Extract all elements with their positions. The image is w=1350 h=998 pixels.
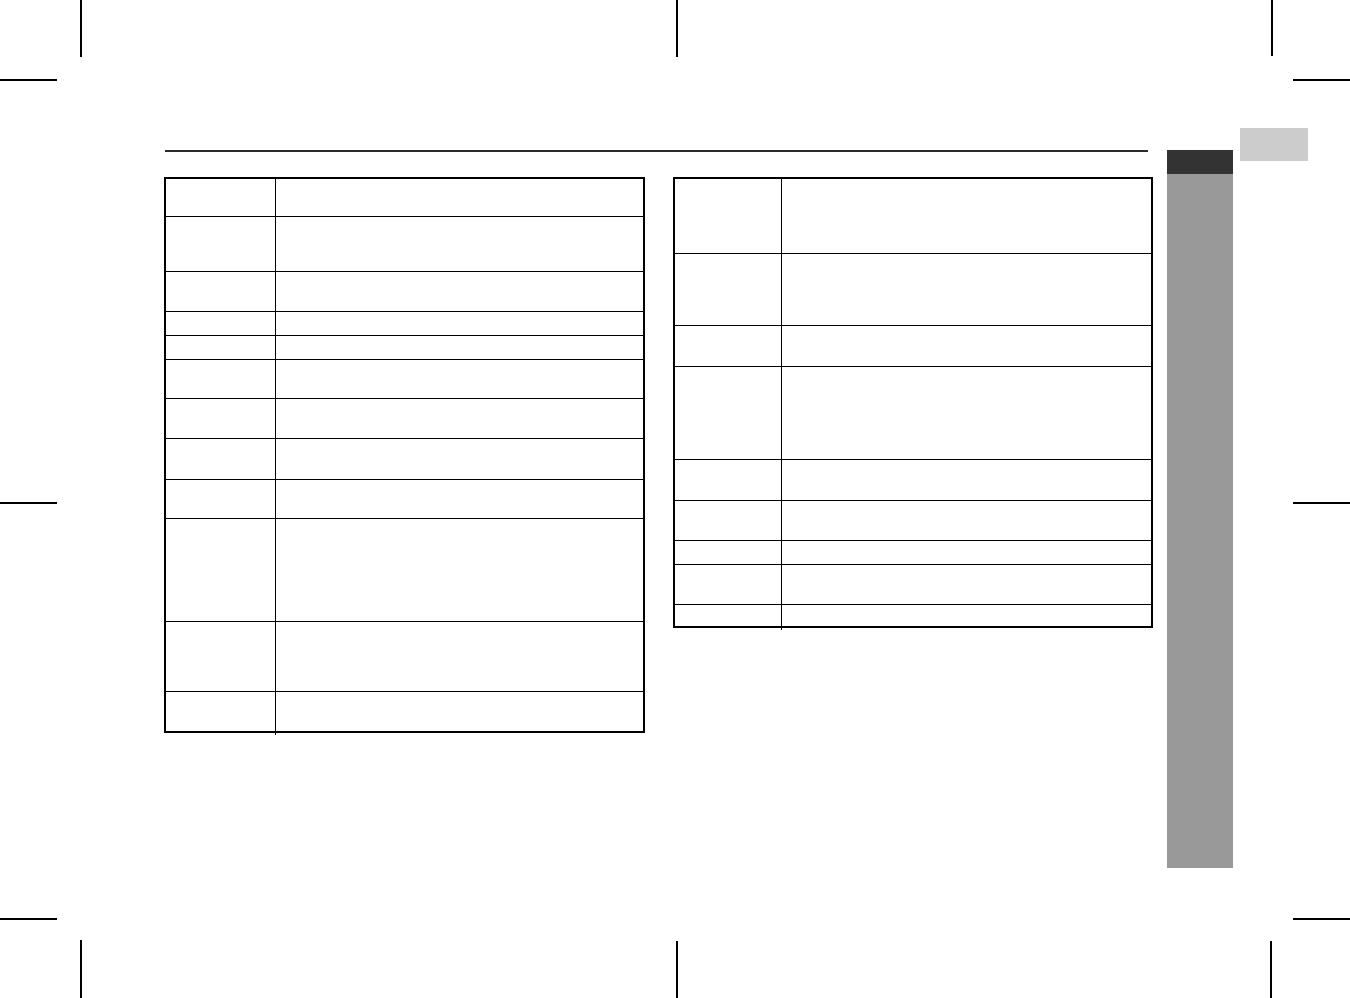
crop-mark-top-right-horizontal bbox=[1293, 79, 1350, 81]
header-rule bbox=[165, 150, 1148, 152]
term-cell bbox=[166, 179, 276, 216]
table-row bbox=[166, 439, 643, 480]
term-cell bbox=[166, 312, 276, 335]
definition-cell bbox=[276, 360, 643, 398]
crop-mark-bottom-left-vertical bbox=[80, 940, 82, 998]
document-page bbox=[0, 0, 1350, 998]
page-corner-tab bbox=[1240, 128, 1308, 161]
definition-cell bbox=[782, 541, 1151, 564]
table-row bbox=[166, 312, 643, 336]
table-row bbox=[675, 460, 1151, 501]
crop-mark-top-left-vertical bbox=[80, 0, 82, 57]
term-cell bbox=[675, 254, 782, 325]
definition-cell bbox=[782, 179, 1151, 253]
definition-cell bbox=[276, 480, 643, 518]
term-cell bbox=[166, 439, 276, 479]
term-cell bbox=[675, 179, 782, 253]
term-cell bbox=[166, 272, 276, 311]
table-row bbox=[675, 326, 1151, 367]
crop-mark-bottom-right-horizontal bbox=[1293, 918, 1350, 920]
crop-mark-top-right-vertical bbox=[1271, 0, 1273, 56]
term-cell bbox=[166, 217, 276, 271]
table-row bbox=[166, 692, 643, 735]
table-row bbox=[166, 399, 643, 439]
right-table bbox=[673, 177, 1153, 628]
section-sidebar-bar bbox=[1167, 174, 1233, 868]
term-cell bbox=[675, 326, 782, 366]
definition-cell bbox=[276, 439, 643, 479]
table-row bbox=[675, 367, 1151, 460]
table-row bbox=[166, 336, 643, 360]
term-cell bbox=[166, 480, 276, 518]
term-cell bbox=[166, 692, 276, 735]
table-row bbox=[675, 254, 1151, 326]
table-row bbox=[675, 501, 1151, 541]
definition-cell bbox=[276, 622, 643, 691]
table-row bbox=[675, 565, 1151, 605]
crop-mark-bottom-left-horizontal bbox=[0, 918, 57, 920]
section-tab bbox=[1167, 150, 1233, 174]
term-cell bbox=[675, 605, 782, 630]
definition-cell bbox=[276, 217, 643, 271]
definition-cell bbox=[782, 565, 1151, 604]
definition-cell bbox=[276, 272, 643, 311]
term-cell bbox=[675, 367, 782, 459]
table-row bbox=[675, 179, 1151, 254]
term-cell bbox=[166, 519, 276, 621]
term-cell bbox=[675, 541, 782, 564]
definition-cell bbox=[782, 326, 1151, 366]
definition-cell bbox=[782, 460, 1151, 500]
table-row bbox=[166, 480, 643, 519]
term-cell bbox=[675, 460, 782, 500]
definition-cell bbox=[782, 254, 1151, 325]
table-row bbox=[166, 360, 643, 399]
table-row bbox=[166, 217, 643, 272]
term-cell bbox=[166, 336, 276, 359]
term-cell bbox=[166, 622, 276, 691]
crop-mark-middle-left-horizontal bbox=[0, 502, 57, 504]
table-row bbox=[166, 622, 643, 692]
table-row bbox=[675, 605, 1151, 630]
definition-cell bbox=[276, 312, 643, 335]
definition-cell bbox=[782, 501, 1151, 540]
term-cell bbox=[675, 501, 782, 540]
crop-mark-middle-right-horizontal bbox=[1293, 502, 1350, 504]
table-row bbox=[166, 519, 643, 622]
crop-mark-bottom-right-vertical bbox=[1270, 941, 1272, 998]
definition-cell bbox=[276, 692, 643, 735]
term-cell bbox=[166, 399, 276, 438]
term-cell bbox=[166, 360, 276, 398]
term-cell bbox=[675, 565, 782, 604]
definition-cell bbox=[276, 336, 643, 359]
table-row bbox=[166, 179, 643, 217]
definition-cell bbox=[782, 367, 1151, 459]
crop-mark-top-left-horizontal bbox=[0, 79, 57, 81]
crop-mark-top-center-vertical bbox=[676, 0, 678, 57]
crop-mark-bottom-center-vertical bbox=[676, 941, 678, 998]
definition-cell bbox=[782, 605, 1151, 630]
table-row bbox=[675, 541, 1151, 565]
left-table bbox=[164, 177, 645, 733]
table-row bbox=[166, 272, 643, 312]
definition-cell bbox=[276, 519, 643, 621]
definition-cell bbox=[276, 399, 643, 438]
definition-cell bbox=[276, 179, 643, 216]
